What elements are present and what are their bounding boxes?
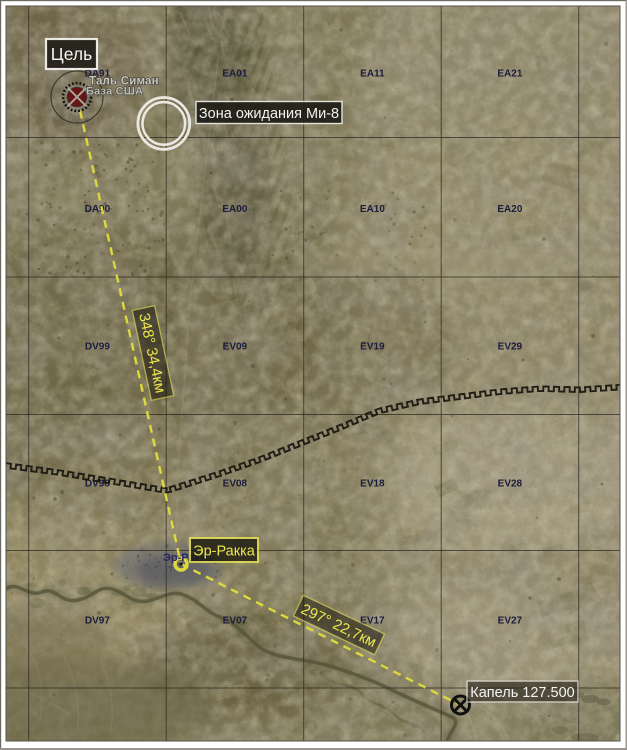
svg-text:EV08: EV08 [223, 479, 248, 490]
svg-text:EV28: EV28 [498, 479, 523, 490]
svg-text:DV99: DV99 [85, 342, 110, 353]
svg-text:Цель: Цель [51, 44, 92, 64]
svg-text:EV19: EV19 [360, 342, 385, 353]
svg-text:Капель 127.500: Капель 127.500 [470, 685, 574, 701]
svg-text:DA90: DA90 [85, 204, 111, 215]
svg-text:EA10: EA10 [360, 204, 385, 215]
svg-text:База США: База США [86, 86, 143, 98]
svg-text:EA11: EA11 [360, 69, 385, 80]
svg-text:EV29: EV29 [498, 342, 523, 353]
svg-text:EA20: EA20 [497, 204, 522, 215]
svg-text:EA21: EA21 [497, 69, 522, 80]
svg-text:EA01: EA01 [222, 69, 247, 80]
svg-text:DV97: DV97 [85, 616, 110, 627]
svg-text:EV09: EV09 [223, 342, 248, 353]
svg-text:Зона ожидания Ми-8: Зона ожидания Ми-8 [199, 106, 339, 122]
svg-text:EV27: EV27 [498, 616, 523, 627]
svg-text:Эр-Ракка: Эр-Ракка [193, 544, 256, 560]
svg-text:EA00: EA00 [222, 204, 247, 215]
svg-text:EV18: EV18 [360, 479, 385, 490]
svg-text:EV07: EV07 [223, 616, 248, 627]
